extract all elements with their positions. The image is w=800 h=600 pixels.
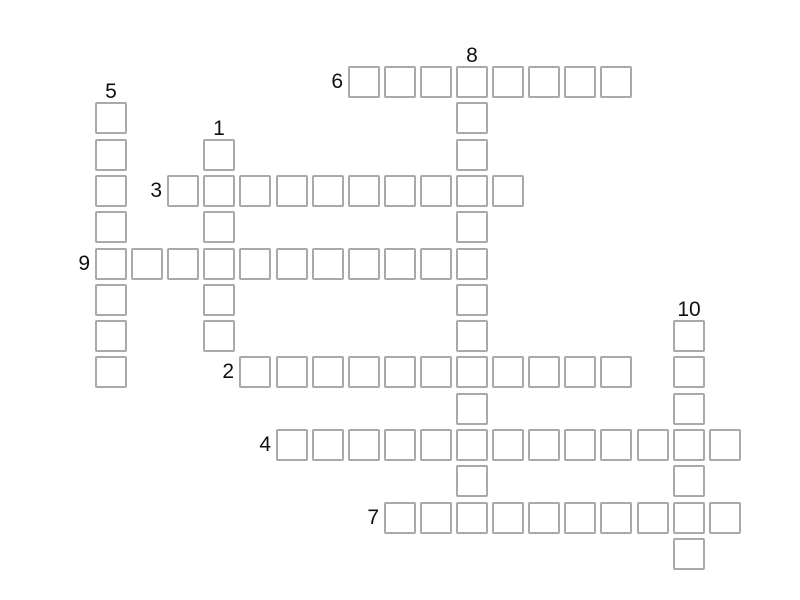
crossword-cell[interactable] <box>167 175 199 207</box>
clue-number-7: 7 <box>329 502 379 534</box>
crossword-cell[interactable] <box>203 175 235 207</box>
crossword-cell[interactable] <box>95 102 127 134</box>
crossword-cell[interactable] <box>203 284 235 316</box>
clue-number-6: 6 <box>293 66 343 98</box>
crossword-cell[interactable] <box>456 284 488 316</box>
crossword-cell[interactable] <box>564 66 596 98</box>
crossword-cell[interactable] <box>276 175 308 207</box>
crossword-cell[interactable] <box>420 248 452 280</box>
crossword-cell[interactable] <box>673 320 705 352</box>
crossword-cell[interactable] <box>492 502 524 534</box>
crossword-cell[interactable] <box>673 393 705 425</box>
crossword-cell[interactable] <box>637 502 669 534</box>
crossword-cell[interactable] <box>600 429 632 461</box>
crossword-cell[interactable] <box>564 356 596 388</box>
crossword-cell[interactable] <box>95 320 127 352</box>
crossword-cell[interactable] <box>384 429 416 461</box>
crossword-cell[interactable] <box>348 248 380 280</box>
crossword-cell[interactable] <box>95 248 127 280</box>
crossword-cell[interactable] <box>492 356 524 388</box>
clue-number-8: 8 <box>446 45 498 66</box>
crossword-cell[interactable] <box>637 429 669 461</box>
crossword-cell[interactable] <box>276 356 308 388</box>
crossword-cell[interactable] <box>456 393 488 425</box>
crossword-cell[interactable] <box>384 356 416 388</box>
crossword-cell[interactable] <box>456 429 488 461</box>
crossword-cell[interactable] <box>528 66 560 98</box>
crossword-cell[interactable] <box>276 248 308 280</box>
crossword-cell[interactable] <box>348 66 380 98</box>
crossword-cell[interactable] <box>673 538 705 570</box>
crossword-cell[interactable] <box>239 356 271 388</box>
crossword-cell[interactable] <box>709 502 741 534</box>
crossword-cell[interactable] <box>420 356 452 388</box>
crossword-cell[interactable] <box>131 248 163 280</box>
clue-number-10: 10 <box>663 299 715 320</box>
crossword-cell[interactable] <box>492 429 524 461</box>
crossword-cell[interactable] <box>95 284 127 316</box>
crossword-cell[interactable] <box>528 429 560 461</box>
crossword-cell[interactable] <box>167 248 199 280</box>
crossword-cell[interactable] <box>312 175 344 207</box>
crossword-cell[interactable] <box>456 139 488 171</box>
crossword-cell[interactable] <box>564 502 596 534</box>
crossword-cell[interactable] <box>673 465 705 497</box>
clue-number-9: 9 <box>40 248 90 280</box>
crossword-cell[interactable] <box>348 429 380 461</box>
crossword-cell[interactable] <box>203 320 235 352</box>
crossword-cell[interactable] <box>456 211 488 243</box>
crossword-cell[interactable] <box>239 175 271 207</box>
crossword-cell[interactable] <box>492 175 524 207</box>
crossword-cell[interactable] <box>95 211 127 243</box>
crossword-cell[interactable] <box>312 248 344 280</box>
crossword-cell[interactable] <box>528 356 560 388</box>
crossword-cell[interactable] <box>456 175 488 207</box>
crossword-cell[interactable] <box>492 66 524 98</box>
crossword-cell[interactable] <box>348 175 380 207</box>
clue-number-2: 2 <box>184 356 234 388</box>
crossword-grid: 12345678910 <box>0 0 800 600</box>
crossword-cell[interactable] <box>600 356 632 388</box>
crossword-cell[interactable] <box>384 175 416 207</box>
crossword-cell[interactable] <box>203 211 235 243</box>
crossword-cell[interactable] <box>420 502 452 534</box>
crossword-cell[interactable] <box>420 175 452 207</box>
crossword-cell[interactable] <box>95 139 127 171</box>
crossword-cell[interactable] <box>348 356 380 388</box>
crossword-cell[interactable] <box>95 356 127 388</box>
crossword-cell[interactable] <box>384 502 416 534</box>
crossword-cell[interactable] <box>420 429 452 461</box>
crossword-cell[interactable] <box>600 66 632 98</box>
crossword-cell[interactable] <box>312 429 344 461</box>
crossword-cell[interactable] <box>564 429 596 461</box>
crossword-cell[interactable] <box>384 248 416 280</box>
clue-number-4: 4 <box>221 429 271 461</box>
crossword-cell[interactable] <box>95 175 127 207</box>
crossword-cell[interactable] <box>203 248 235 280</box>
crossword-cell[interactable] <box>203 139 235 171</box>
crossword-cell[interactable] <box>420 66 452 98</box>
clue-number-5: 5 <box>85 81 137 102</box>
crossword-cell[interactable] <box>239 248 271 280</box>
crossword-cell[interactable] <box>456 248 488 280</box>
crossword-cell[interactable] <box>456 66 488 98</box>
crossword-cell[interactable] <box>528 502 560 534</box>
crossword-cell[interactable] <box>312 356 344 388</box>
crossword-cell[interactable] <box>456 502 488 534</box>
crossword-cell[interactable] <box>384 66 416 98</box>
crossword-cell[interactable] <box>456 465 488 497</box>
crossword-cell[interactable] <box>276 429 308 461</box>
crossword-cell[interactable] <box>673 356 705 388</box>
crossword-cell[interactable] <box>456 102 488 134</box>
crossword-cell[interactable] <box>600 502 632 534</box>
crossword-cell[interactable] <box>709 429 741 461</box>
clue-number-1: 1 <box>193 118 245 139</box>
crossword-cell[interactable] <box>673 502 705 534</box>
crossword-cell[interactable] <box>673 429 705 461</box>
crossword-cell[interactable] <box>456 320 488 352</box>
crossword-cell[interactable] <box>456 356 488 388</box>
